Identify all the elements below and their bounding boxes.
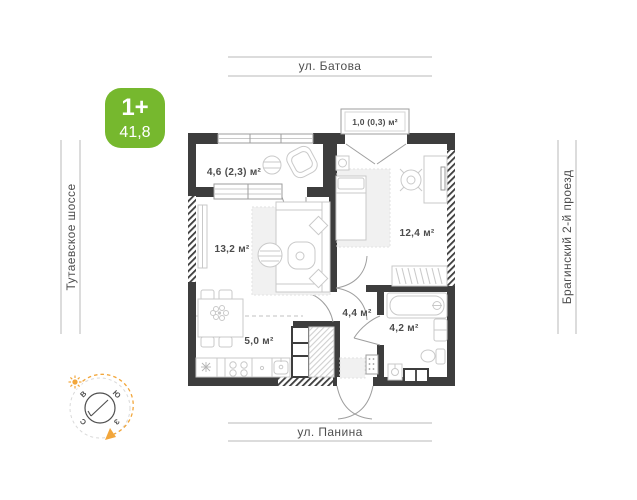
badge-area: 41,8 [119,124,150,141]
living-hall-door-arc [303,292,333,322]
street-name-top: ул. Батова [299,59,362,73]
balcony-door-leaf-right [377,144,406,164]
room-label-loggia: 4,6 (2,3) м² [207,167,262,178]
compass: В Ю С З [68,374,133,440]
bedroom-pillow [338,178,364,189]
room-label-bathroom: 4,2 м² [389,323,419,334]
loggia-table [263,156,281,174]
opening-bathroom-door [377,315,384,345]
hall-mat [340,358,365,378]
living-coffee-table [258,243,282,267]
compass-east: В [78,389,89,400]
street-label-bottom: ул. Панина [228,423,432,441]
hall-shoe-rack [366,355,378,374]
badge-rooms: 1+ [121,94,148,121]
opening-balcony-door [345,133,407,144]
compass-south: Ю [111,388,123,400]
loggia-furniture: 4,6 (2,3) м² [207,144,320,181]
bedroom-monitor [441,167,445,190]
toilet-bowl [421,350,435,362]
compass-west: З [112,417,122,427]
kitchen-chair-3 [201,337,214,347]
wall-hatch-left [188,196,196,282]
room-label-hallway: 4,4 м² [342,308,372,319]
room-label-bedroom: 12,4 м² [399,228,434,239]
apartment-badge: 1+ 41,8 [105,88,165,148]
balcony-door-leaf-left [346,144,375,164]
opening-loggia-door [282,187,307,197]
hall-cabinet [292,327,309,377]
toilet-tank [436,349,445,364]
living-furniture: 13,2 м² [198,202,330,295]
wall-hatch-bottom [278,377,333,386]
room-label-living: 13,2 м² [214,244,249,255]
wall-loggia-bedroom [323,133,337,187]
loggia-armchair [284,144,320,181]
wall-hatch-right [447,150,455,286]
sun-icon [68,375,82,389]
bathroom-door-leaf [354,338,380,345]
bathroom-fixtures: 4,2 м² [387,293,447,382]
room-label-kitchen: 5,0 м² [244,336,274,347]
street-name-bottom: ул. Панина [297,425,362,439]
kitchen-chair-4 [219,337,232,347]
wall-hall-kitchen [334,321,340,377]
hall-closet-hatched [309,327,334,377]
floor-plan-page: ул. Батова ул. Панина Тутаевское шоссе Б… [0,0,637,500]
street-label-left: Тутаевское шоссе [61,140,80,334]
fridge-snowflake-icon [201,362,211,372]
street-name-right: Брагинский 2-й проезд [560,170,574,305]
bedroom-furniture: 12,4 м² [336,156,447,286]
street-label-right: Брагинский 2-й проезд [558,140,576,334]
kitchen-furniture: 5,0 м² [196,290,303,377]
opening-bedroom-door [337,285,366,292]
street-name-left: Тутаевское шоссе [64,183,78,290]
bedroom-door-arc-1 [336,256,367,288]
opening-entrance [337,377,373,386]
compass-north: С [78,416,89,427]
room-label-balcony: 1,0 (0,3) м² [352,117,398,127]
floor-plan: ул. Батова ул. Панина Тутаевское шоссе Б… [0,0,637,500]
street-label-top: ул. Батова [228,57,432,76]
